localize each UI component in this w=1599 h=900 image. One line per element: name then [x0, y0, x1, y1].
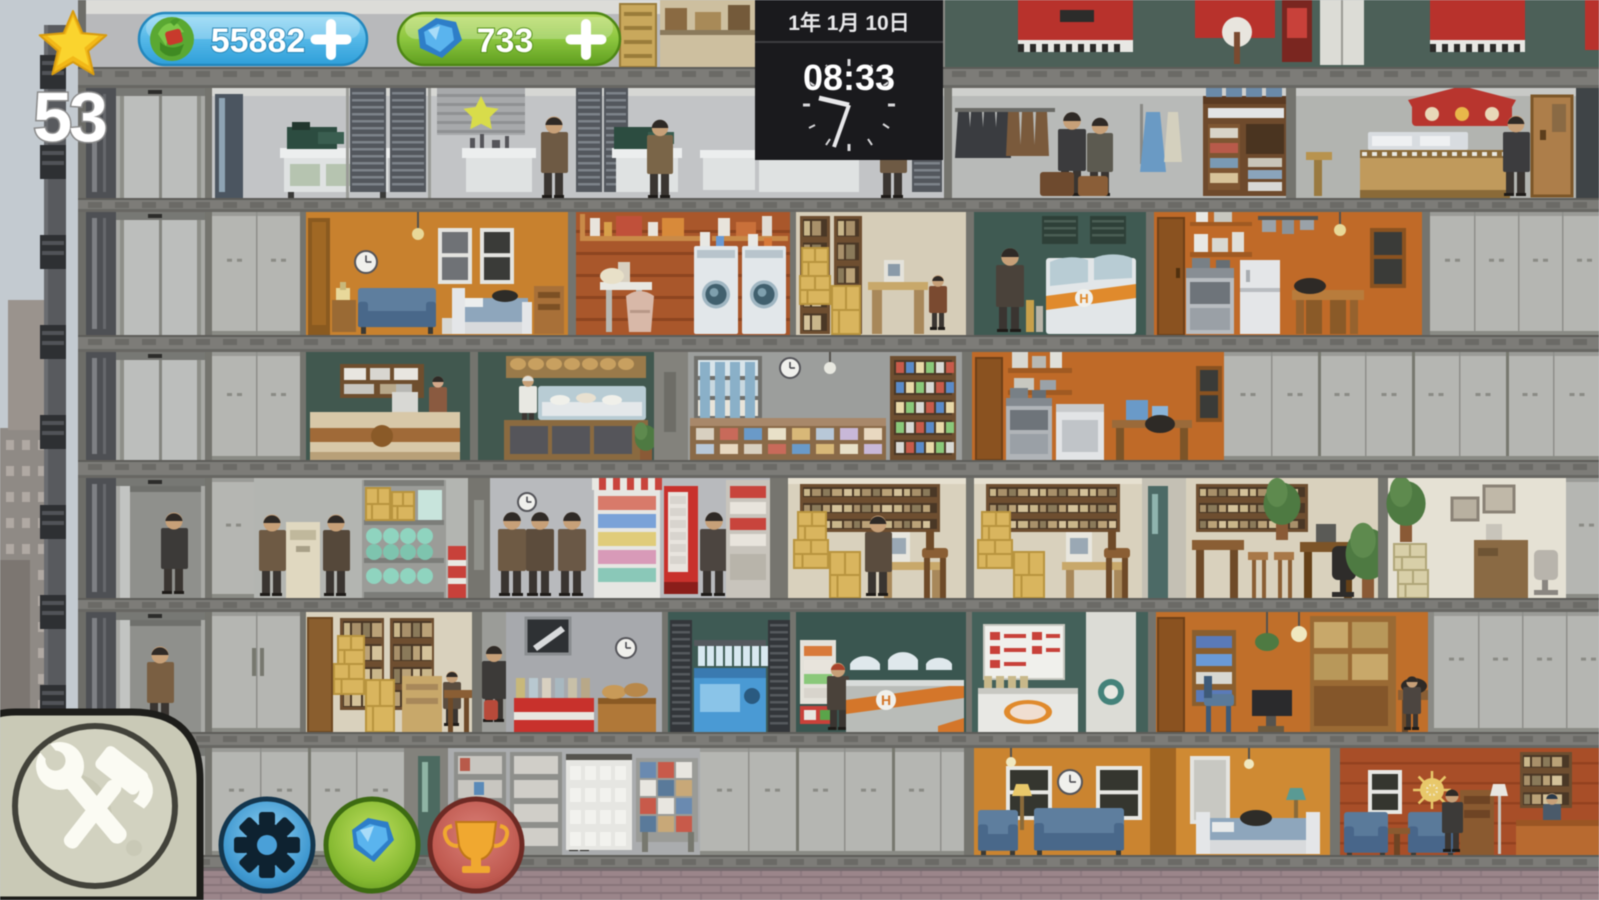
- svg-text:H: H: [881, 692, 891, 708]
- svg-text:55882: 55882: [211, 22, 306, 60]
- svg-text:1年 1月 10日: 1年 1月 10日: [788, 11, 909, 35]
- svg-text:733: 733: [477, 22, 534, 60]
- svg-text:08:33: 08:33: [803, 57, 895, 98]
- svg-text:H: H: [1079, 291, 1088, 306]
- svg-text:53: 53: [33, 78, 106, 156]
